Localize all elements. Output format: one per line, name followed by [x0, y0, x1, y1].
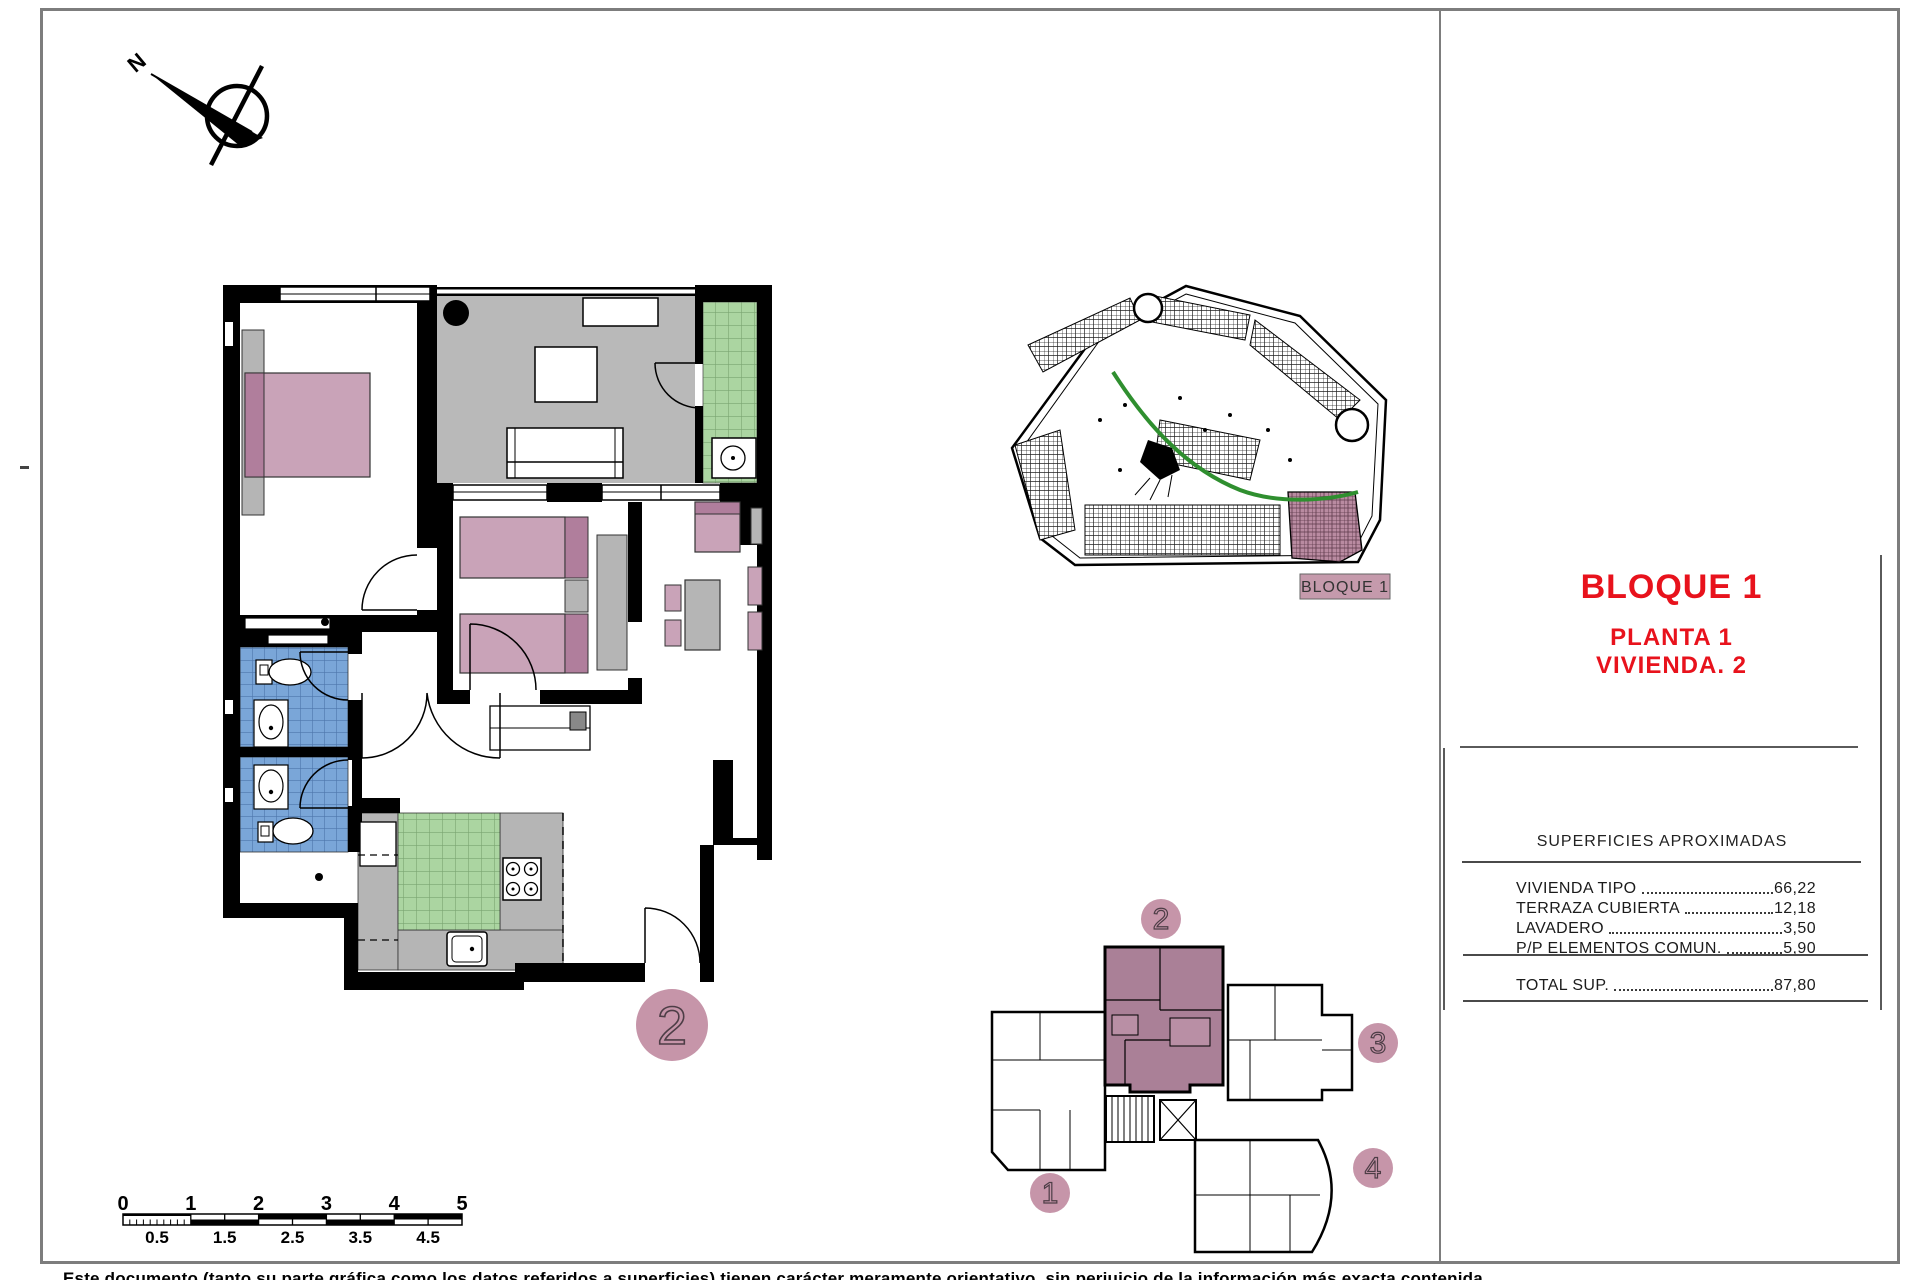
table-row: TERRAZA CUBIERTA 12,18 — [1516, 898, 1816, 918]
dining-chair — [665, 585, 681, 611]
svg-text:3: 3 — [321, 1193, 332, 1215]
floor-title: PLANTA 1 — [1441, 624, 1902, 652]
entry-door — [645, 908, 700, 963]
row-label: TERRAZA CUBIERTA — [1516, 900, 1680, 918]
svg-text:3.5: 3.5 — [348, 1228, 372, 1247]
margin-tick — [20, 466, 29, 469]
panel-rule — [1460, 746, 1858, 748]
dining-chair — [665, 620, 681, 646]
site-plan-label-text: BLOQUE 1 — [1301, 579, 1389, 596]
svg-text:0.5: 0.5 — [145, 1228, 169, 1247]
bed-headboard — [245, 373, 264, 477]
bench — [507, 428, 623, 478]
table-rule — [1463, 954, 1868, 956]
dotted-leader — [1614, 989, 1773, 991]
drain-dot — [321, 618, 329, 626]
total-label: TOTAL SUP. — [1516, 977, 1609, 995]
drain-dot — [315, 873, 323, 881]
svg-text:4: 4 — [389, 1193, 401, 1215]
bedroom2-furniture — [460, 517, 627, 673]
areas-table: VIVIENDA TIPO 66,22 TERRAZA CUBIERTA 12,… — [1516, 878, 1816, 958]
north-compass: N — [110, 35, 300, 185]
table-rule — [1463, 1000, 1868, 1002]
key-core — [1106, 1096, 1196, 1142]
dining-chair — [748, 612, 762, 650]
total-value: 87,80 — [1774, 977, 1816, 995]
main-floor-plan: 2 — [175, 225, 815, 1075]
site-plan-label: BLOQUE 1 — [1300, 574, 1390, 599]
unit-number: 2 — [657, 996, 687, 1056]
areas-table-total: TOTAL SUP. 87,80 — [1516, 975, 1816, 995]
row-label: VIVIENDA TIPO — [1516, 880, 1637, 898]
unit-title: VIVIENDA. 2 — [1441, 652, 1902, 680]
sideboard — [490, 706, 590, 750]
round-table — [443, 300, 469, 326]
site-highlighted-block — [1288, 492, 1362, 562]
scale-major-labels: 0 1 2 3 4 5 — [117, 1193, 467, 1215]
site-plan: BLOQUE 1 — [1000, 275, 1400, 605]
living-window — [602, 485, 720, 500]
key-unit-2-number: 2 — [1153, 903, 1170, 936]
svg-text:1: 1 — [185, 1193, 196, 1215]
terrace-planter — [583, 298, 658, 326]
row-value: 12,18 — [1774, 900, 1816, 918]
twin-bed-1 — [460, 517, 565, 578]
north-label: N — [123, 48, 151, 77]
block-title: BLOQUE 1 — [1441, 568, 1902, 607]
bedroom1-door — [362, 555, 417, 610]
square-table — [535, 347, 597, 402]
areas-table-title: SUPERFICIES APROXIMADAS — [1443, 833, 1881, 851]
cupboard — [360, 822, 396, 866]
svg-text:0: 0 — [117, 1193, 128, 1215]
scale-minor-labels: 0.5 1.5 2.5 3.5 4.5 — [145, 1228, 440, 1247]
key-plan: 1 2 3 4 — [980, 885, 1450, 1270]
kitchen-floor — [398, 813, 500, 930]
key-unit-4 — [1195, 1140, 1332, 1252]
bedroom2-window — [453, 485, 547, 500]
key-unit-3-number: 3 — [1370, 1027, 1387, 1060]
dotted-leader — [1685, 912, 1773, 914]
svg-text:2: 2 — [253, 1193, 264, 1215]
scale-bar: 0 1 2 3 4 5 0.5 1.5 2.5 3.5 4.5 — [100, 1185, 480, 1250]
sink — [259, 705, 283, 739]
twin-bed-2 — [460, 614, 565, 673]
closet-door — [245, 618, 330, 629]
kitchen-sink — [447, 932, 487, 966]
disclaimer-text: Este documento (tanto su parte gráfica c… — [63, 1269, 1863, 1280]
table-row: LAVADERO 3,50 — [1516, 918, 1816, 938]
table-rule — [1462, 861, 1861, 863]
row-label: LAVADERO — [1516, 920, 1604, 938]
bedroom1-window — [280, 287, 430, 301]
key-unit-1-number: 1 — [1042, 1177, 1059, 1210]
dotted-leader — [1609, 932, 1782, 934]
scale-bar-graphic — [123, 1214, 462, 1225]
table-row: TOTAL SUP. 87,80 — [1516, 975, 1816, 995]
roundabout — [1134, 294, 1162, 322]
toilet — [273, 818, 313, 844]
key-unit-3 — [1228, 985, 1352, 1100]
roundabout — [1336, 409, 1368, 441]
table-row: VIVIENDA TIPO 66,22 — [1516, 878, 1816, 898]
svg-text:5: 5 — [456, 1193, 467, 1215]
unit-number-badge: 2 — [636, 989, 708, 1061]
dining-chair — [748, 567, 762, 605]
svg-text:2.5: 2.5 — [281, 1228, 305, 1247]
row-value: 3,50 — [1783, 920, 1816, 938]
laundry-room — [712, 438, 756, 478]
side-table — [751, 508, 762, 544]
sink — [259, 770, 283, 802]
svg-text:4.5: 4.5 — [416, 1228, 440, 1247]
svg-text:1.5: 1.5 — [213, 1228, 237, 1247]
dotted-leader — [1642, 892, 1773, 894]
row-value: 66,22 — [1774, 880, 1816, 898]
key-unit-1 — [992, 1012, 1105, 1170]
plan-sheet: N — [0, 0, 1920, 1280]
bath1-window — [268, 635, 328, 644]
wardrobe — [597, 535, 627, 670]
key-unit-4-number: 4 — [1365, 1152, 1382, 1185]
table-right-border — [1880, 555, 1882, 1010]
dining-table — [685, 580, 720, 650]
stove — [503, 858, 541, 900]
bedroom1-furniture — [242, 330, 370, 515]
table-left-border — [1443, 748, 1445, 1010]
nightstand — [565, 580, 588, 612]
key-unit-2-highlighted — [1105, 947, 1223, 1092]
hall-double-door — [362, 693, 500, 758]
